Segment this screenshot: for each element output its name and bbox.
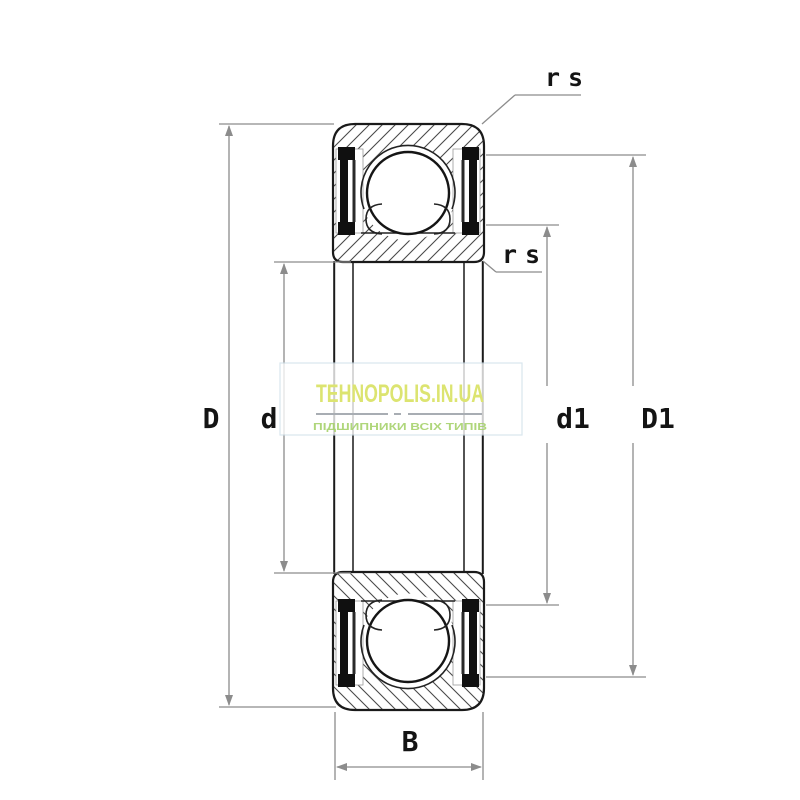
bearing-upper-section: [333, 124, 484, 262]
seal-left: [338, 147, 356, 235]
dim-label-D: D: [203, 402, 220, 435]
dim-label-rs-bottom: rs: [502, 240, 548, 269]
dim-label-d1: d1: [556, 402, 590, 435]
dim-label-D1: D1: [641, 402, 675, 435]
dim-label-d: d: [261, 402, 278, 435]
chamfer-callout-top: [482, 95, 581, 124]
seal-right: [462, 147, 480, 235]
watermark-tagline: ПІДШИПНИКИ ВСІХ ТИПІВ: [313, 422, 487, 433]
ball: [367, 152, 449, 234]
watermark-title: TEHNOPOLIS.IN.UA: [316, 380, 484, 408]
drawing-canvas: TEHNOPOLIS.IN.UA ПІДШИПНИКИ ВСІХ ТИПІВ D…: [0, 0, 800, 800]
bearing-technical-drawing: TEHNOPOLIS.IN.UA ПІДШИПНИКИ ВСІХ ТИПІВ D…: [0, 0, 800, 800]
watermark: TEHNOPOLIS.IN.UA ПІДШИПНИКИ ВСІХ ТИПІВ: [280, 363, 522, 435]
dim-label-rs-top: rs: [545, 63, 591, 92]
bearing-lower-section: [333, 572, 484, 710]
dim-label-B: B: [402, 725, 419, 758]
